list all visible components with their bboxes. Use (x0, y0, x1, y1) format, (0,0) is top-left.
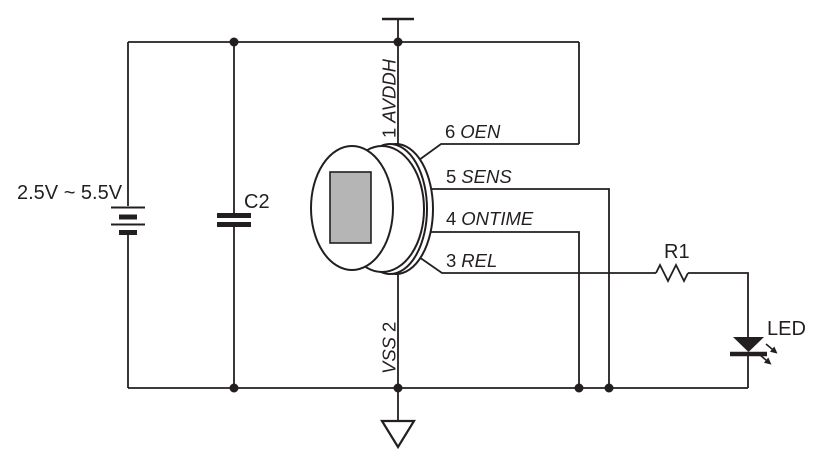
junction-dot (394, 384, 403, 393)
sensor-window (330, 172, 371, 243)
pin-label-ontime: 4ONTIME (446, 208, 534, 229)
junction-dot (605, 384, 614, 393)
circuit-diagram: 2.5V ~ 5.5V C2 R1 LED 1AVDDH VSS2 6OEN 5… (0, 0, 829, 470)
pin-label-avddh: 1AVDDH (379, 58, 400, 138)
wires (128, 19, 748, 421)
ground-triangle-icon (382, 421, 414, 447)
pin-label-sens: 5SENS (446, 166, 512, 187)
supply-voltage-label: 2.5V ~ 5.5V (17, 182, 123, 204)
wire-oen (419, 144, 579, 160)
pir-sensor-can-icon (311, 144, 433, 274)
junction-dot (230, 384, 239, 393)
pin-label-vss: VSS2 (379, 322, 400, 374)
pin-label-oen: 6OEN (445, 121, 501, 142)
junction-dot (575, 384, 584, 393)
battery-2-cell-icon (111, 208, 145, 233)
led-diode-emitting-icon (730, 337, 780, 367)
resistor-label: R1 (664, 241, 690, 263)
junction-dot (394, 38, 403, 47)
schematic-canvas: 2.5V ~ 5.5V C2 R1 LED 1AVDDH VSS2 6OEN 5… (0, 0, 829, 470)
wire-resistor-to-led (688, 273, 748, 337)
capacitor-plates-icon (217, 216, 251, 225)
resistor-zigzag-icon (656, 265, 688, 281)
led-label: LED (767, 318, 806, 340)
capacitor-label: C2 (244, 191, 270, 213)
led-triangle (733, 337, 764, 352)
junction-dot (230, 38, 239, 47)
pin-label-rel: 3REL (446, 250, 497, 271)
